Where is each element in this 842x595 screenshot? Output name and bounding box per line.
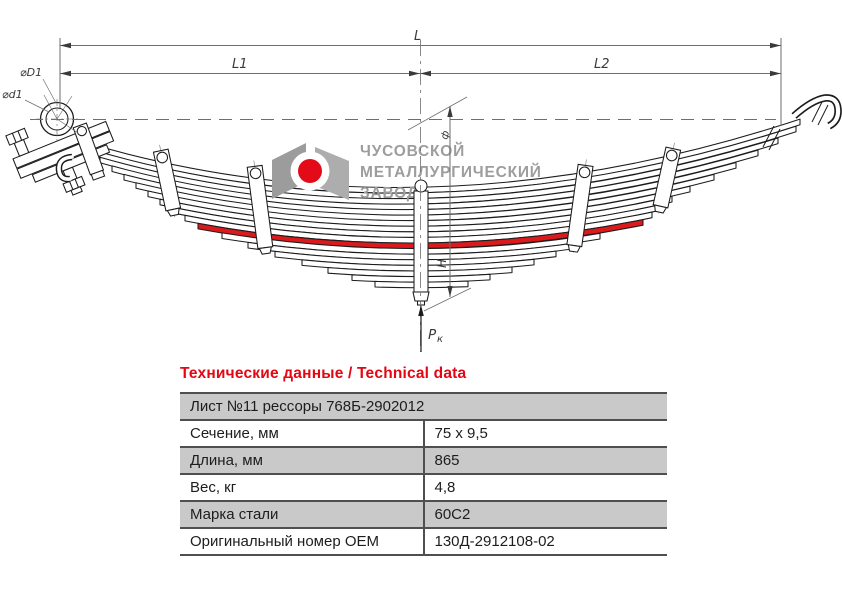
dim-label-eye-inner: ⌀d1 [2, 88, 23, 101]
spec-label-cell: Сечение, мм [180, 420, 424, 447]
construction-line [408, 97, 467, 130]
table-title: Технические данные / Technical data [180, 365, 667, 383]
spec-value-cell: 130Д-2912108-02 [424, 528, 668, 555]
leaf-spring-drawing: ЧУСОВСКОЙ МЕТАЛЛУРГИЧЕСКИЙ ЗАВОД [0, 0, 842, 362]
watermark-line-3: ЗАВОД [360, 185, 419, 202]
spec-value-cell: 75 x 9,5 [424, 420, 668, 447]
dim-label-height: H [435, 259, 449, 268]
table-row: Лист №11 рессоры 768Б-2902012 [180, 393, 667, 420]
spec-label-cell: Оригинальный номер OEM [180, 528, 424, 555]
load-arrow: Р к [418, 305, 443, 352]
spring-eye-assembly [4, 95, 127, 211]
center-bolt [413, 180, 429, 305]
table-row: Вес, кг 4,8 [180, 474, 667, 501]
dim-label-L2: L2 [594, 57, 610, 72]
technical-data-section: Технические данные / Technical data Лист… [180, 365, 667, 556]
table-row: Оригинальный номер OEM 130Д-2912108-02 [180, 528, 667, 555]
page: ЧУСОВСКОЙ МЕТАЛЛУРГИЧЕСКИЙ ЗАВОД [0, 0, 842, 595]
dim-label-L: L [414, 29, 421, 44]
leader-d1 [25, 100, 49, 112]
load-label-P: Р [428, 327, 437, 343]
load-label-k: к [437, 334, 443, 345]
spec-value-cell: 865 [424, 447, 668, 474]
table-row: Марка стали 60С2 [180, 501, 667, 528]
dim-label-L1: L1 [232, 57, 248, 72]
spec-table: Лист №11 рессоры 768Б-2902012 Сечение, м… [180, 392, 667, 556]
spec-header-cell: Лист №11 рессоры 768Б-2902012 [180, 393, 667, 420]
watermark-line-1: ЧУСОВСКОЙ [360, 142, 465, 160]
table-row: Длина, мм 865 [180, 447, 667, 474]
leader-D1 [43, 79, 56, 103]
spec-label-cell: Марка стали [180, 501, 424, 528]
dim-label-eye-outer: ⌀D1 [20, 66, 42, 79]
spec-label-cell: Вес, кг [180, 474, 424, 501]
construction-line [424, 288, 471, 311]
watermark-line-2: МЕТАЛЛУРГИЧЕСКИЙ [360, 163, 542, 181]
spec-label-cell: Длина, мм [180, 447, 424, 474]
spec-value-cell: 60С2 [424, 501, 668, 528]
table-row: Сечение, мм 75 x 9,5 [180, 420, 667, 447]
spec-value-cell: 4,8 [424, 474, 668, 501]
logo-red-dot [298, 159, 322, 183]
